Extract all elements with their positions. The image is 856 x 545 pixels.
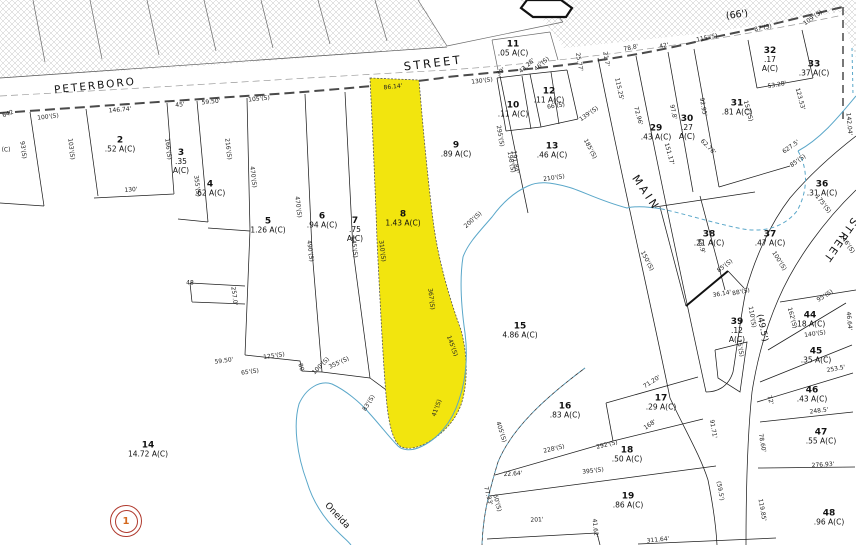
dimension-label: 142.04' — [845, 112, 854, 135]
parcel-18-label[interactable]: 18.50 A(C) — [612, 446, 643, 465]
tax-parcel-map: 2.52 A(C)3.35 A(C)4.62 A(C)51.26 A(C)6.9… — [0, 0, 856, 545]
parcel-area: .96 A(C) — [814, 519, 845, 528]
dimension-label: 41.62' — [591, 518, 600, 537]
dimension-label: 83'(S) — [361, 394, 376, 413]
dimension-label: 71.20' — [642, 374, 662, 390]
dimension-label: 130'(S) — [471, 76, 493, 86]
parcel-10-label[interactable]: 10.11 A(C) — [498, 101, 529, 120]
dimension-label: 150'(S) — [639, 250, 655, 272]
parcel-area: .50 A(C) — [612, 456, 643, 465]
dimension-label: 311.64' — [646, 535, 669, 544]
parcel-area: .37 A(C) — [799, 70, 830, 79]
dimension-label: 185'(S) — [582, 138, 598, 160]
dimension-label: 395'(S) — [582, 466, 604, 476]
parcel-5-label[interactable]: 51.26 A(C) — [250, 217, 285, 236]
dimension-label: 87'(S) — [754, 23, 773, 34]
dimension-label: 25.77' — [574, 52, 584, 72]
dimension-label: 355'(S) — [192, 175, 202, 197]
parcel-area: 1.26 A(C) — [250, 227, 285, 236]
dimension-label: 228'(S) — [543, 443, 566, 455]
dimension-label: 21.7' — [601, 51, 611, 67]
parcel-17-label[interactable]: 17.29 A(C) — [646, 394, 677, 413]
dimension-label: 65'(S) — [241, 367, 260, 376]
parcel-6-label[interactable]: 6.94 A(C) — [307, 212, 338, 231]
dimension-label: 22.64' — [503, 470, 522, 478]
parcel-area: .83 A(C) — [550, 412, 581, 421]
dimension-label: 310'(S) — [377, 240, 387, 262]
parcel-16-label[interactable]: 16.83 A(C) — [550, 402, 581, 421]
dimension-label: 115.25' — [613, 77, 625, 101]
dimension-label: 145'(S) — [445, 335, 459, 358]
map-note-number: 1 — [123, 516, 130, 527]
parcel-area: .05 A(C) — [498, 50, 529, 59]
dimension-label: 93'(S) — [18, 141, 27, 160]
dimension-label: 115'(S) — [696, 32, 719, 43]
parcel-area: .43 A(C) — [641, 134, 672, 143]
dimension-label: 46'(S) — [533, 55, 551, 72]
dimension-label: 53.28' — [767, 80, 787, 90]
dimension-label: 109'(S) — [802, 9, 824, 27]
dimension-label: 85'(S) — [716, 258, 734, 274]
dimension-label: 168' — [643, 418, 658, 431]
parcel-36-label[interactable]: 36.31 A(C) — [807, 180, 838, 199]
parcel-area: .17 A(C) — [757, 57, 783, 74]
dimension-label: 42' — [659, 42, 670, 51]
parcel-11-label[interactable]: 11.05 A(C) — [498, 40, 529, 59]
parcel-48-label[interactable]: 48.96 A(C) — [814, 509, 845, 528]
dimension-label: 139'(S) — [578, 105, 600, 123]
dimension-label: 48 — [186, 280, 194, 287]
dimension-label: 490'(S) — [305, 240, 315, 262]
parcel-area: .47 A(C) — [755, 240, 786, 249]
parcel-2-label[interactable]: 2.52 A(C) — [105, 136, 136, 155]
parcel-8-label[interactable]: 81.43 A(C) — [385, 210, 420, 229]
parcel-area: .18 A(C) — [795, 321, 826, 330]
dimension-label: 78.60' — [757, 433, 767, 453]
dimension-label: 46.64' — [845, 311, 854, 330]
dimension-label: 86.14' — [383, 83, 402, 92]
dimension-label: 39' — [495, 66, 507, 77]
dimension-label: 276.93' — [811, 461, 834, 470]
parcel-45-label[interactable]: 45.35 A(C) — [801, 347, 832, 366]
dimension-label: 85'(S) — [789, 153, 808, 169]
dimension-label: 470'(S) — [293, 196, 303, 218]
parcel-area: 14.72 A(C) — [128, 451, 168, 460]
dimension-label: 41'(S) — [431, 398, 444, 417]
parcel-33-label[interactable]: 33.37 A(C) — [799, 60, 830, 79]
dimension-label: 95'(S) — [816, 288, 835, 303]
parcel-area: .35 A(C) — [801, 357, 832, 366]
parcel-29-label[interactable]: 29.43 A(C) — [641, 124, 672, 143]
parcel-area: .94 A(C) — [307, 222, 338, 231]
dimension-label: 248.5' — [809, 406, 829, 415]
dimension-label: 130' — [124, 186, 138, 194]
parcel-47-label[interactable]: 47.55 A(C) — [806, 428, 837, 447]
dimension-label: 642 — [1, 109, 14, 119]
parcel-46-label[interactable]: 46.43 A(C) — [797, 386, 828, 405]
dimension-label: 210'(S) — [543, 173, 565, 183]
parcel-14-label[interactable]: 1414.72 A(C) — [128, 441, 168, 460]
dimension-label: 200'(S) — [463, 210, 484, 230]
parcel-9-label[interactable]: 9.89 A(C) — [441, 141, 472, 160]
parcel-area: .55 A(C) — [806, 438, 837, 447]
dimension-label: 140'(S) — [804, 329, 826, 339]
parcel-area: .86 A(C) — [613, 502, 644, 511]
parcel-32-label[interactable]: 32.17 A(C) — [757, 46, 783, 74]
dimension-label: 45' — [175, 101, 185, 109]
dimension-label: 100'(S) — [770, 250, 787, 272]
parcel-area: .43 A(C) — [797, 396, 828, 405]
dimension-label: 146.74' — [108, 106, 131, 115]
dimension-label: 59.50' — [201, 98, 220, 107]
dimension-label: 125'(S) — [263, 351, 285, 361]
dimension-label: 257.0' — [229, 286, 238, 306]
dimension-label: 103'(S) — [66, 138, 76, 160]
parcel-19-label[interactable]: 19.86 A(C) — [613, 492, 644, 511]
dimension-label: 405'(S) — [494, 421, 507, 444]
parcel-area: .27 A(C) — [674, 125, 700, 142]
parcel-area: .11 A(C) — [498, 111, 529, 120]
parcel-37-label[interactable]: 37.47 A(C) — [755, 230, 786, 249]
parcel-area: 1.43 A(C) — [385, 220, 420, 229]
dimension-label: (59.5') — [715, 481, 725, 502]
dimension-label: 78.8' — [623, 43, 639, 53]
parcel-area: .35 A(C) — [168, 159, 194, 176]
parcel-15-label[interactable]: 154.86 A(C) — [502, 322, 537, 341]
dimension-label: 59.50' — [214, 356, 234, 366]
dimension-label: 80' — [296, 363, 305, 374]
dimension-label: 119.85' — [757, 498, 768, 522]
dimension-label: 627.5' — [781, 139, 800, 156]
dimension-label: 60'(S) — [491, 494, 502, 513]
dimension-label: 62.76' — [699, 138, 717, 156]
dimension-label: 123.53' — [794, 87, 807, 111]
parcel-area: .46 A(C) — [537, 152, 568, 161]
dimension-label: 151.17' — [663, 142, 676, 166]
dimension-label: 191.84' — [510, 150, 520, 173]
dimension-label: 66'(S) — [547, 101, 566, 110]
dimension-label: 201' — [530, 516, 543, 524]
dimension-label: 295'(S) — [495, 125, 506, 147]
parcel-area: .52 A(C) — [105, 146, 136, 155]
map-note-marker: 1 — [110, 505, 142, 537]
dimension-label: 36.14' — [712, 289, 732, 299]
dimension-label: 72' — [765, 395, 774, 406]
dimension-label: 105'(S) — [248, 94, 270, 103]
dimension-label: 166'(S) — [163, 138, 173, 160]
dimension-label: 470'(S) — [248, 166, 258, 188]
parcel-area: .89 A(C) — [441, 151, 472, 160]
dimension-label: 355'(S) — [328, 355, 351, 370]
parcel-44-label[interactable]: 44.18 A(C) — [795, 311, 826, 330]
parcel-13-label[interactable]: 13.46 A(C) — [537, 142, 568, 161]
dimension-label: 72.96' — [632, 106, 644, 126]
parcel-area: 4.86 A(C) — [502, 332, 537, 341]
dimension-label: 216'(S) — [223, 138, 233, 160]
parcel-area: .29 A(C) — [646, 404, 677, 413]
dimension-label: 100'(S) — [37, 112, 59, 122]
dimension-label: 91.71' — [708, 419, 718, 439]
dimension-label: 367'(S) — [426, 288, 436, 310]
dimension-label: 97.8' — [668, 104, 678, 120]
dimension-label: 88'(S) — [732, 287, 751, 298]
dimension-label: (C) — [2, 147, 11, 154]
